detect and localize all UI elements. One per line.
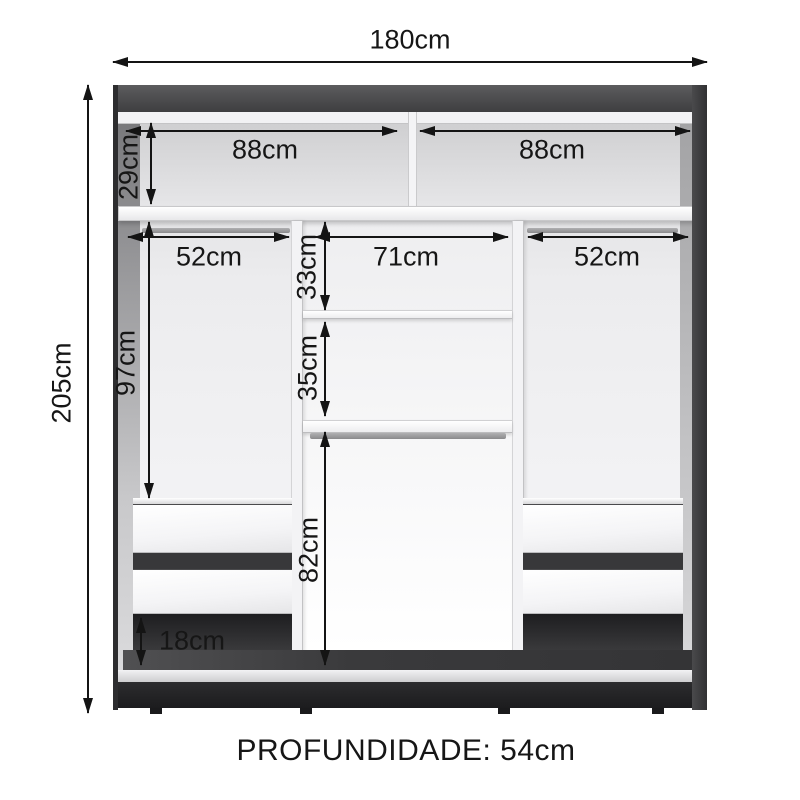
foot-4 xyxy=(652,708,664,714)
dim-label-left-column-height: 97cm xyxy=(111,330,142,396)
dim-arrow-top-right-width xyxy=(420,130,690,132)
center-shelf-upper xyxy=(303,310,512,319)
wardrobe-top-panel xyxy=(113,85,707,112)
drawer-right-base-gap xyxy=(523,614,683,651)
hanging-rod-center xyxy=(310,433,506,439)
full-width-shelf xyxy=(118,206,702,221)
top-center-divider xyxy=(408,112,417,208)
foot-1 xyxy=(150,708,162,714)
foot-2 xyxy=(300,708,312,714)
drawer-left-gap xyxy=(133,553,292,569)
dim-arrow-total-height xyxy=(87,85,89,713)
drawer-unit-right xyxy=(523,498,683,652)
dim-arrow-center-lower-gap xyxy=(324,322,326,416)
dim-label-total-width: 180cm xyxy=(369,25,450,56)
dim-label-center-lower-gap: 35cm xyxy=(293,335,324,401)
hanging-rod-right xyxy=(527,228,678,233)
dim-label-total-height: 205cm xyxy=(47,342,78,423)
foot-3 xyxy=(498,708,510,714)
dim-arrow-center-width xyxy=(315,236,508,238)
plinth xyxy=(116,682,704,708)
depth-label: PROFUNDIDADE: 54cm xyxy=(236,734,575,768)
hanging-rod-left xyxy=(142,228,290,233)
dim-arrow-total-width xyxy=(113,61,707,63)
drawer-right-gap xyxy=(523,553,683,569)
drawer-left-1 xyxy=(133,504,292,553)
dim-arrow-left-column-height xyxy=(148,222,150,498)
dim-arrow-top-height xyxy=(150,123,152,204)
dim-arrow-right-width xyxy=(528,236,688,238)
frame-right-edge xyxy=(692,85,707,710)
dim-arrow-base-gap xyxy=(140,618,142,665)
dim-label-hanging-height: 82cm xyxy=(294,517,325,583)
bottom-panel-edge xyxy=(113,670,707,682)
dim-label-center-width: 71cm xyxy=(373,242,439,273)
dim-label-top-height: 29cm xyxy=(114,134,145,200)
dim-label-top-left-width: 88cm xyxy=(232,135,298,166)
dim-label-right-width: 52cm xyxy=(574,242,640,273)
dim-arrow-center-upper-gap xyxy=(324,222,326,310)
dim-label-left-width: 52cm xyxy=(176,242,242,273)
wardrobe-dimension-diagram: 180cm 205cm 88cm 88cm 29cm 52cm 71cm 52c… xyxy=(0,0,800,800)
dim-label-center-upper-gap: 33cm xyxy=(292,234,323,300)
dim-label-top-right-width: 88cm xyxy=(519,135,585,166)
drawer-right-1 xyxy=(523,504,683,553)
center-shelf-lower xyxy=(303,420,512,433)
dim-label-base-gap: 18cm xyxy=(159,626,225,657)
drawer-right-2 xyxy=(523,569,683,614)
drawer-left-2 xyxy=(133,569,292,614)
dim-arrow-top-left-width xyxy=(126,130,397,132)
